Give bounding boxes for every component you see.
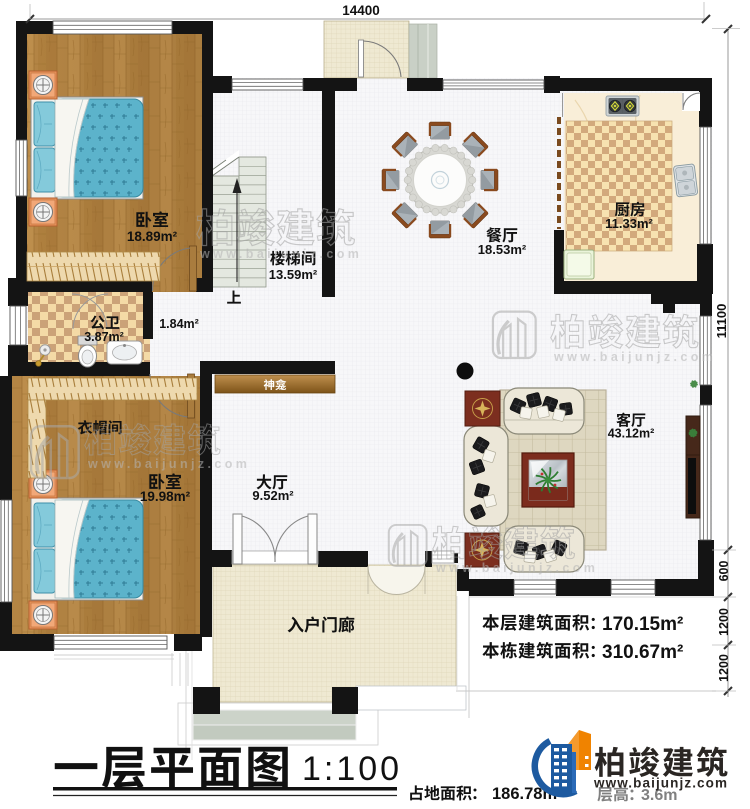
svg-text:1200: 1200	[717, 654, 731, 682]
svg-text:18.53m²: 18.53m²	[478, 242, 527, 257]
svg-text:11100: 11100	[714, 304, 729, 339]
svg-text:19.98m²: 19.98m²	[140, 489, 191, 504]
svg-text:43.12m²: 43.12m²	[608, 427, 655, 441]
svg-text:www.baijunjz.com: www.baijunjz.com	[199, 247, 362, 261]
svg-text:9.52m²: 9.52m²	[252, 488, 294, 503]
svg-text:18.89m²: 18.89m²	[127, 229, 178, 244]
svg-text:13.59m²: 13.59m²	[269, 267, 318, 282]
svg-text:www.baijunjz.com: www.baijunjz.com	[435, 561, 598, 575]
svg-text:1200: 1200	[717, 608, 731, 636]
svg-text:www.baijunjz.com: www.baijunjz.com	[553, 350, 716, 364]
svg-text:1:100: 1:100	[302, 750, 402, 788]
svg-text:11.33m²: 11.33m²	[605, 216, 653, 231]
svg-text:14400: 14400	[342, 3, 380, 18]
svg-text:170.15m²: 170.15m²	[602, 614, 683, 635]
svg-text:600: 600	[717, 561, 731, 582]
svg-text:www.baijunjz.com: www.baijunjz.com	[87, 457, 250, 471]
svg-text:3.87m²: 3.87m²	[84, 330, 124, 344]
svg-text:310.67m²: 310.67m²	[602, 642, 683, 663]
svg-text:www.baijunjz.com: www.baijunjz.com	[593, 776, 728, 791]
svg-text:1.84m²: 1.84m²	[159, 317, 199, 331]
